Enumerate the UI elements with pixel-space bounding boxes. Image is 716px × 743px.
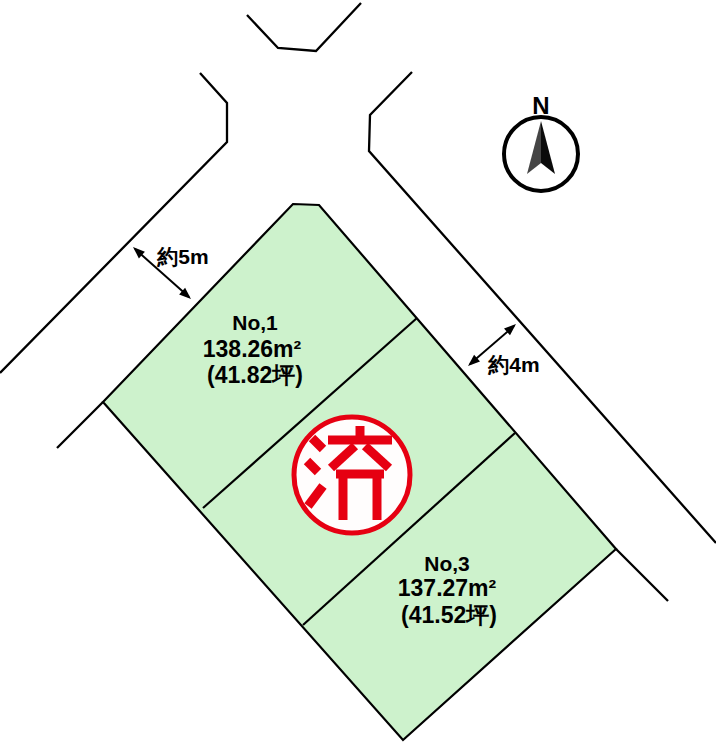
plot-no3-tsubo: (41.52坪) bbox=[401, 602, 497, 628]
parcel-frontage-extension bbox=[57, 402, 103, 448]
plot-no1-tsubo: (41.82坪) bbox=[207, 362, 303, 388]
compass-north-label: N bbox=[532, 92, 549, 119]
road-corner-north bbox=[247, 3, 361, 51]
dimension-label-4m: 約4m bbox=[487, 353, 539, 376]
land-plot-map: 約5m 約4m No,1 138.26m² (41.82坪) No,3 137.… bbox=[0, 0, 716, 743]
plot-no1-name: No,1 bbox=[232, 311, 278, 334]
road-edge-southeast-extension bbox=[616, 549, 668, 601]
plot-no3-name: No,3 bbox=[424, 552, 470, 575]
dimension-label-5m: 約5m bbox=[156, 245, 208, 268]
sold-stamp bbox=[294, 417, 410, 533]
dimension-west-road: 約5m bbox=[133, 245, 209, 299]
plot-no1-area: 138.26m² bbox=[203, 336, 302, 362]
compass: N bbox=[504, 92, 578, 191]
plot-map-svg: 約5m 約4m No,1 138.26m² (41.82坪) No,3 137.… bbox=[0, 0, 716, 743]
plot-no3-area: 137.27m² bbox=[398, 575, 497, 601]
